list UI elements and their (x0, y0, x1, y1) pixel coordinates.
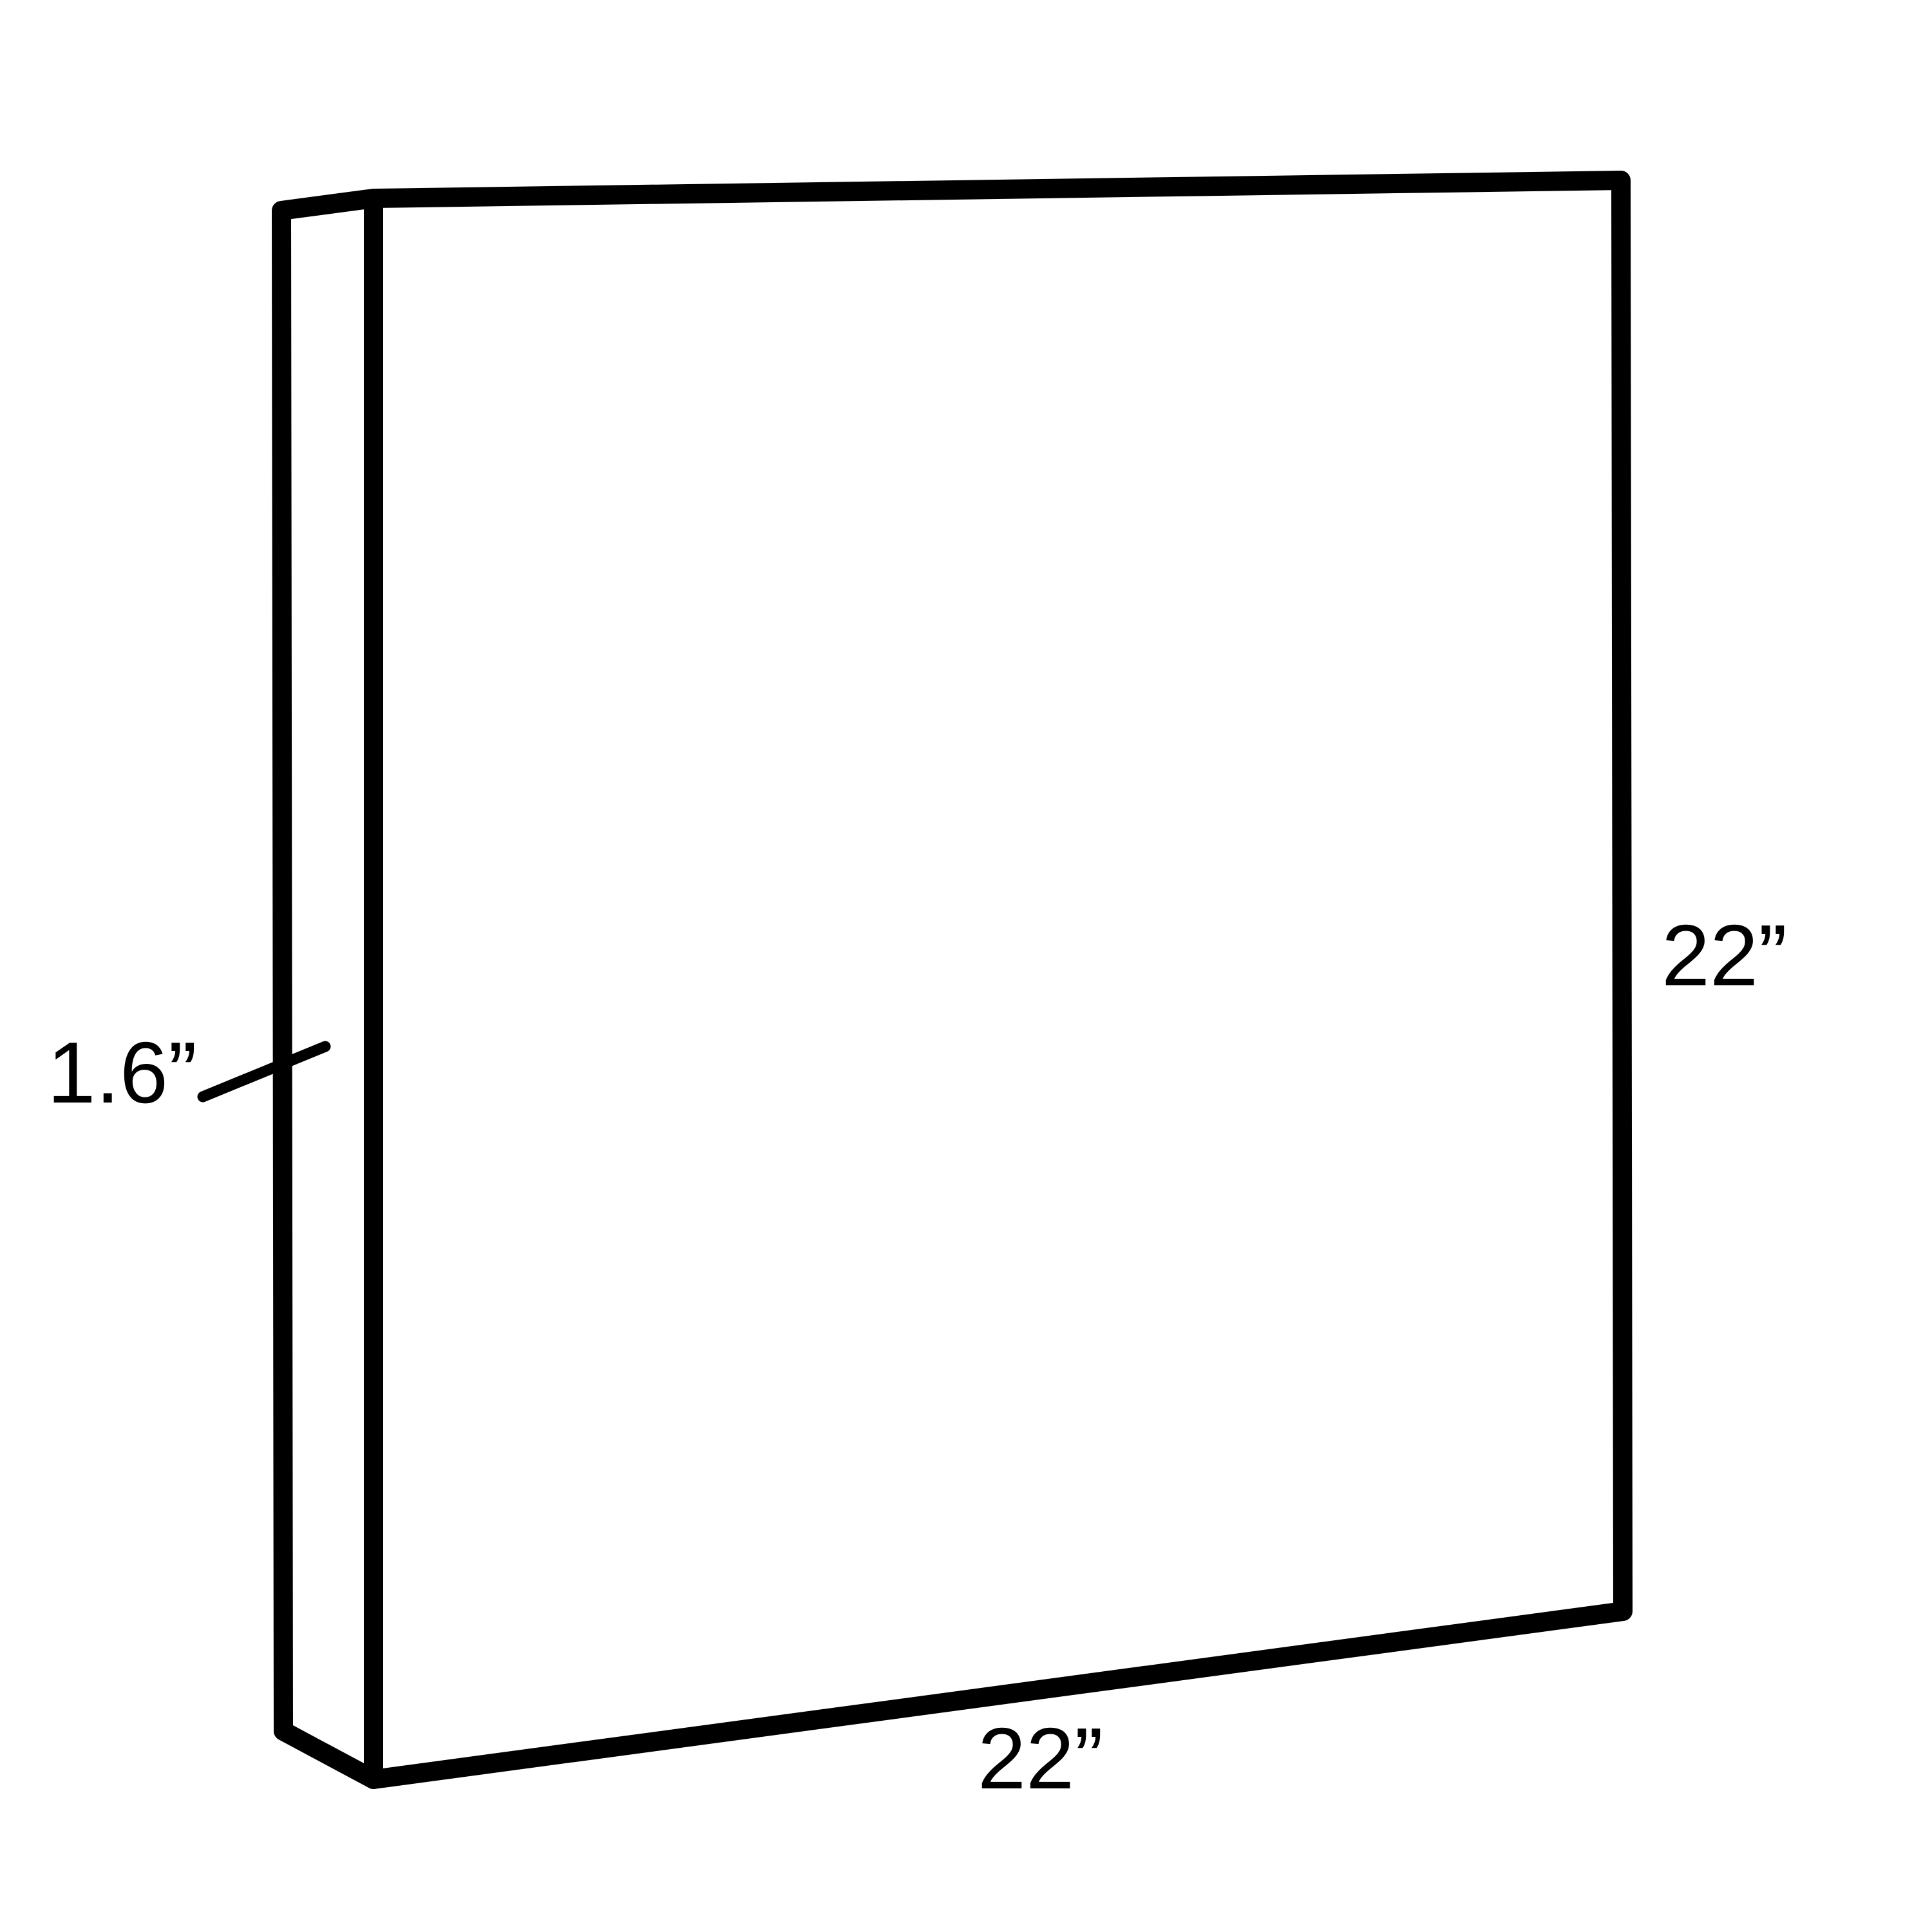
depth-leader-line (203, 1046, 325, 1097)
diagram-canvas: 1.6” 22” 22” (0, 0, 1932, 1932)
panel-side-face (281, 198, 374, 1779)
panel-front-face (374, 180, 1623, 1779)
height-dimension-label: 22” (1662, 907, 1787, 1004)
width-dimension-label: 22” (978, 1710, 1103, 1807)
panel-dimension-diagram: 1.6” 22” 22” (0, 0, 1932, 1932)
depth-dimension-label: 1.6” (47, 1024, 197, 1121)
